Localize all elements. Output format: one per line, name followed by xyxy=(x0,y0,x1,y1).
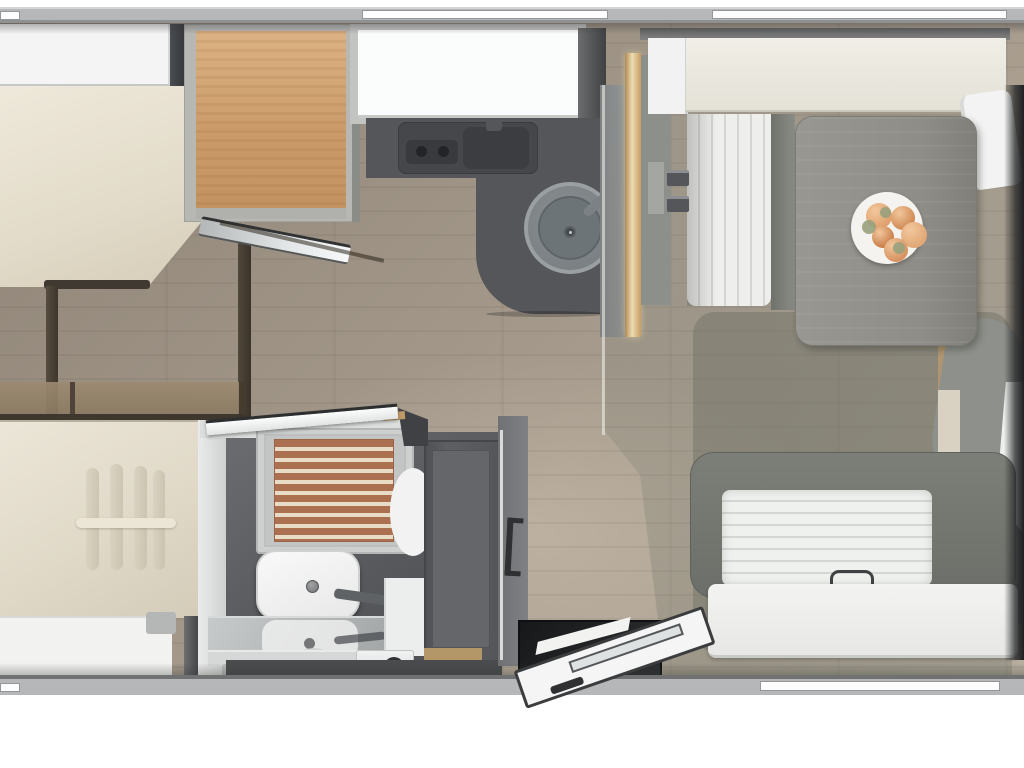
stove-knob xyxy=(438,146,449,157)
stove-knob-panel xyxy=(406,140,458,164)
stove-burner-tray xyxy=(462,126,530,170)
dinette-cabinet-corner xyxy=(648,38,688,114)
shower-wood-mat xyxy=(274,439,394,542)
bed-edge-shadow xyxy=(44,280,150,289)
window-strip xyxy=(712,10,1007,19)
window-strip xyxy=(362,10,608,19)
right-wall-shadow xyxy=(1004,85,1024,660)
interior-shadow xyxy=(0,23,1024,34)
garnish-leaf xyxy=(893,242,905,254)
duvet-fold xyxy=(76,518,176,528)
stove-hinge xyxy=(486,119,502,131)
counter-shadow xyxy=(486,311,606,317)
caravan-floorplan xyxy=(0,0,1024,768)
entry-grab-handle xyxy=(504,518,523,577)
duvet-pleat xyxy=(110,464,123,570)
rear-bench-cushion xyxy=(722,490,932,586)
window-strip xyxy=(0,11,20,20)
interior-shadow xyxy=(0,663,1024,675)
roof-glass-edge xyxy=(602,85,605,435)
overhead-locker-bar xyxy=(196,208,346,219)
rear-bed-wood-head xyxy=(0,382,246,418)
wood-panel-gap xyxy=(70,382,75,418)
dinette-seat-gap xyxy=(771,114,795,310)
wardrobe-door xyxy=(432,450,490,648)
stove-knob xyxy=(416,146,427,157)
garnish-leaf xyxy=(880,207,891,218)
seat-bracket xyxy=(667,196,689,212)
sink-drain-dot xyxy=(569,231,572,234)
led-light-strip xyxy=(625,53,641,337)
side-chair-cushion xyxy=(938,390,960,460)
bed-step xyxy=(146,612,176,634)
window-strip xyxy=(0,683,20,692)
dinette-side-cabinet-notch xyxy=(648,162,664,214)
overhead-locker-wood-interior xyxy=(196,31,346,211)
seat-bracket xyxy=(667,170,689,186)
dinette-seat-shade xyxy=(687,114,717,306)
rear-bench-front-panel xyxy=(708,584,1018,658)
garnish-leaf xyxy=(862,220,876,234)
kitchen-overhead-panel xyxy=(358,30,578,118)
dinette-backrest xyxy=(686,38,1006,112)
toilet-flush-button xyxy=(306,580,319,593)
window-strip xyxy=(760,681,1000,691)
bench-handle xyxy=(830,570,874,585)
bathroom-cabinet xyxy=(384,578,424,656)
wood-panel-gap xyxy=(239,382,246,418)
door-jamb-highlight xyxy=(500,430,503,660)
